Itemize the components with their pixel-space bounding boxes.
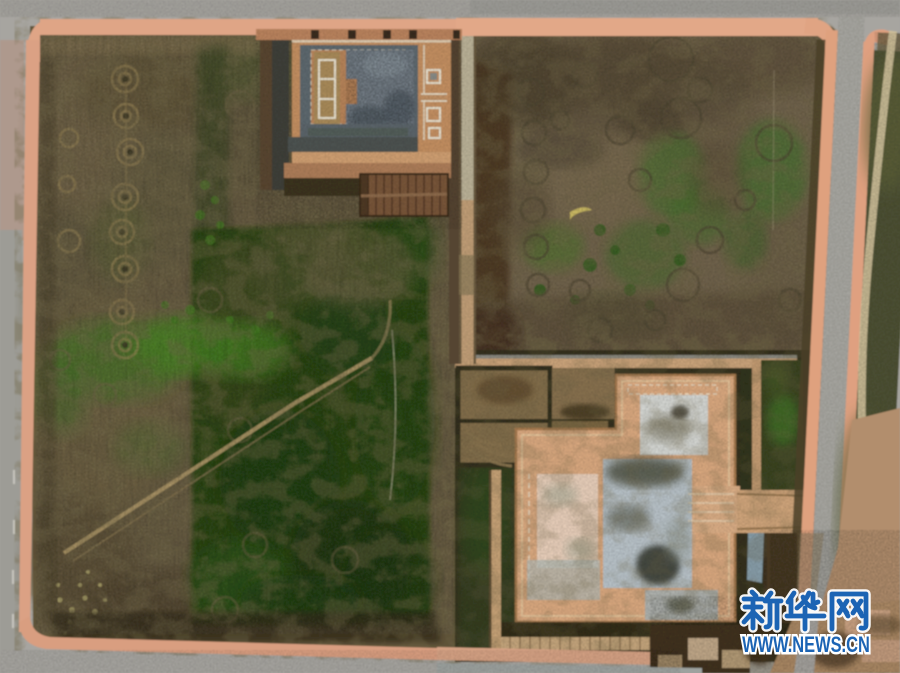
svg-text:WWW.NEWS.CN: WWW.NEWS.CN xyxy=(742,633,870,658)
